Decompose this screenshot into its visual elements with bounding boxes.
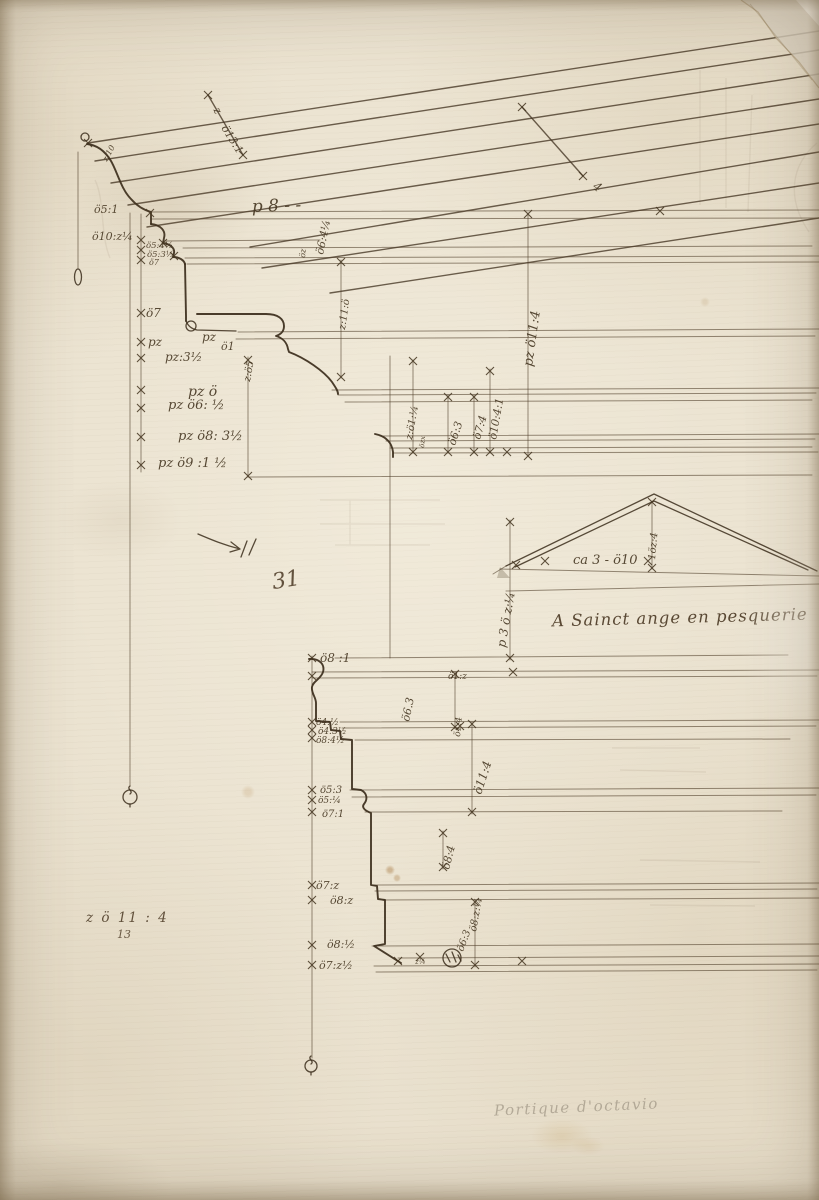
guide-line bbox=[338, 393, 816, 395]
guide-line bbox=[312, 676, 817, 678]
measurement-annotation: ö6.3 bbox=[399, 696, 417, 722]
guide-line bbox=[312, 670, 819, 672]
measure-tick bbox=[146, 209, 154, 217]
drawing-svg: z:10zö13:1ö5:1ö10:z¼p 8 - -ö6:4¼özö5:4½ö… bbox=[0, 0, 819, 1200]
measurement-annotation: ö7:z½ bbox=[319, 959, 353, 972]
paper-damage bbox=[741, 0, 819, 88]
measurement-annotation: pz ö6: ½ bbox=[168, 398, 225, 413]
plumb-bob-circle bbox=[123, 790, 137, 804]
measurement-annotation: p 3 ö z:¼ bbox=[494, 591, 518, 649]
measurement-annotation: ö10:z¼ bbox=[92, 230, 133, 243]
measurement-annotation: 4 bbox=[589, 178, 604, 194]
raking-line bbox=[95, 50, 819, 161]
raking-line bbox=[262, 183, 819, 268]
measurement-annotation: pz bbox=[148, 335, 163, 349]
measurement-annotation: ca 3 - ö10 bbox=[573, 553, 637, 568]
drawing-sheet: z:10zö13:1ö5:1ö10:z¼p 8 - -ö6:4¼özö5:4½ö… bbox=[0, 0, 819, 1200]
guide-line bbox=[372, 944, 819, 946]
upper-cornice-profile bbox=[81, 133, 393, 457]
raking-line bbox=[111, 74, 819, 183]
raking-line bbox=[128, 99, 819, 205]
measurement-annotation: 1öz:4 bbox=[647, 532, 660, 560]
measurement-annotation: ö11:4 bbox=[471, 759, 495, 796]
measure-tick bbox=[503, 448, 511, 456]
measurement-annotation: ö1 bbox=[221, 340, 235, 353]
measurement-annotation: öz bbox=[298, 248, 308, 259]
measurement-annotation: ö7 bbox=[146, 306, 161, 320]
measurement-annotation: pz bbox=[202, 330, 217, 344]
measurement-annotation: ö6:4¼ bbox=[313, 219, 333, 256]
measurement-annotation: ö8:z:¼ bbox=[468, 897, 485, 932]
arrow-mark bbox=[198, 534, 256, 557]
measure-tick bbox=[579, 172, 587, 180]
guide-line bbox=[376, 970, 817, 972]
measurement-annotation: özx bbox=[418, 436, 427, 449]
guide-line bbox=[165, 240, 320, 241]
guide-line bbox=[355, 739, 790, 740]
measure-tick bbox=[518, 103, 526, 111]
measurement-annotation: ö7:z bbox=[316, 879, 339, 892]
measurement-annotation: z:10 bbox=[100, 144, 116, 164]
measurement-annotation: ö8:½ bbox=[327, 938, 355, 951]
measurement-annotation: z:11:ö bbox=[337, 298, 352, 331]
guide-line bbox=[375, 889, 817, 891]
raking-line bbox=[522, 107, 583, 176]
measurement-annotation: ö8:z bbox=[330, 894, 353, 907]
measure-tick bbox=[518, 957, 526, 965]
measurement-annotation: ö7:1 bbox=[322, 809, 344, 820]
raking-line bbox=[330, 218, 819, 293]
measure-tick bbox=[656, 207, 664, 215]
measurement-annotation: ö13:1 bbox=[218, 123, 246, 156]
guide-line bbox=[183, 246, 812, 248]
guide-line bbox=[335, 655, 788, 658]
guide-line bbox=[500, 569, 819, 576]
guide-line bbox=[383, 898, 819, 900]
guide-line bbox=[332, 388, 819, 390]
raking-line bbox=[88, 31, 819, 143]
guide-line bbox=[365, 811, 782, 812]
measurement-annotation: pz ö11:4 bbox=[521, 310, 544, 368]
measure-tick bbox=[204, 91, 212, 99]
guide-line bbox=[342, 726, 816, 728]
guide-line bbox=[345, 400, 812, 402]
measurement-annotation: pz:3½ bbox=[165, 350, 202, 364]
measurement-annotation: ö8 :1 bbox=[320, 651, 350, 665]
guide-line bbox=[152, 218, 819, 219]
guide-line bbox=[187, 262, 819, 264]
plumb-bob-lens bbox=[75, 269, 82, 285]
horizontal-guide-lines bbox=[150, 210, 819, 972]
measurement-annotation: ö8:4 bbox=[439, 844, 457, 871]
guide-line bbox=[248, 475, 812, 477]
measurement-annotation: ö7 bbox=[149, 258, 160, 267]
measurement-annotation: ö5:1 bbox=[94, 203, 118, 216]
measurement-annotation: ö1:4 bbox=[453, 716, 465, 737]
guide-line bbox=[380, 434, 819, 436]
measurement-annotation: ö1:z bbox=[448, 672, 467, 682]
guide-line bbox=[350, 788, 819, 790]
measurement-annotation: ö8:4½ bbox=[316, 735, 345, 746]
guide-line bbox=[390, 447, 812, 448]
raking-line bbox=[250, 152, 819, 247]
measurement-annotation: z¼ bbox=[414, 958, 426, 966]
measurement-annotation: ö10:4:1 bbox=[486, 397, 506, 441]
measurement-annotation: ö5:3 bbox=[320, 785, 342, 796]
measurement-annotation: p 8 - - bbox=[251, 195, 301, 217]
measurement-annotation: pz ö9 :1 ½ bbox=[158, 456, 227, 471]
measurement-annotation: z bbox=[210, 104, 225, 117]
measure-tick bbox=[509, 668, 517, 676]
diagonal-raking-lines bbox=[88, 31, 819, 293]
guide-line bbox=[185, 256, 819, 258]
measure-tick bbox=[541, 557, 549, 565]
guide-line bbox=[373, 883, 819, 885]
guide-line bbox=[393, 452, 818, 453]
measurement-annotation: pz ö8: 3½ bbox=[178, 429, 243, 444]
measurement-annotation: ö6:3 bbox=[455, 928, 473, 953]
plumb-bob-circle bbox=[305, 1060, 317, 1072]
guide-line bbox=[506, 584, 819, 591]
guide-line bbox=[374, 964, 819, 966]
verso-showthrough bbox=[95, 70, 817, 906]
guide-line bbox=[352, 795, 816, 797]
measurement-annotation: ö5:¼ bbox=[318, 795, 341, 806]
